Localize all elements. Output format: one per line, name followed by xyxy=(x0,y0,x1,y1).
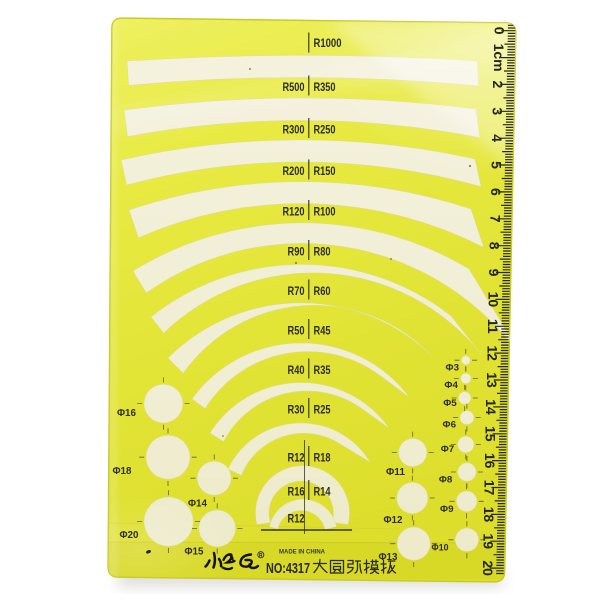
svg-text:17: 17 xyxy=(482,480,498,496)
svg-text:18: 18 xyxy=(481,507,497,523)
svg-text:R100: R100 xyxy=(314,204,336,218)
svg-text:Φ12: Φ12 xyxy=(384,514,403,526)
svg-text:R1000: R1000 xyxy=(314,36,342,50)
svg-text:R18: R18 xyxy=(314,450,331,464)
svg-text:13: 13 xyxy=(484,372,500,388)
svg-text:Φ11: Φ11 xyxy=(386,466,405,478)
svg-text:MADE IN CHINA: MADE IN CHINA xyxy=(279,549,325,556)
svg-text:Φ20: Φ20 xyxy=(120,529,139,541)
svg-text:R40: R40 xyxy=(288,363,305,377)
svg-text:R250: R250 xyxy=(314,122,336,136)
svg-text:Φ8: Φ8 xyxy=(439,475,453,485)
svg-text:Φ4: Φ4 xyxy=(444,380,458,390)
svg-text:R50: R50 xyxy=(288,323,305,337)
svg-text:1cm: 1cm xyxy=(491,44,507,72)
svg-text:R35: R35 xyxy=(314,363,331,377)
svg-text:Φ7: Φ7 xyxy=(441,444,455,454)
svg-text:0: 0 xyxy=(491,27,507,35)
svg-text:R80: R80 xyxy=(314,244,331,258)
svg-text:R500: R500 xyxy=(283,80,305,94)
svg-text:12: 12 xyxy=(484,345,500,361)
svg-text:9: 9 xyxy=(486,269,502,277)
svg-text:10: 10 xyxy=(486,292,502,308)
svg-text:NO:4317: NO:4317 xyxy=(266,561,310,577)
svg-text:R14: R14 xyxy=(314,484,331,498)
svg-text:R: R xyxy=(259,553,263,559)
svg-text:Φ16: Φ16 xyxy=(117,407,136,419)
svg-text:R60: R60 xyxy=(314,284,331,298)
svg-text:Φ6: Φ6 xyxy=(443,420,457,430)
svg-text:R120: R120 xyxy=(283,204,305,218)
svg-text:Φ5: Φ5 xyxy=(443,398,457,408)
svg-text:15: 15 xyxy=(483,426,499,442)
svg-text:11: 11 xyxy=(485,319,501,334)
svg-text:R30: R30 xyxy=(288,402,305,416)
svg-text:8: 8 xyxy=(487,242,503,250)
svg-text:Φ14: Φ14 xyxy=(188,497,207,509)
svg-text:6: 6 xyxy=(488,188,504,196)
svg-text:R300: R300 xyxy=(283,122,305,136)
svg-text:R12: R12 xyxy=(288,511,305,525)
svg-text:R12: R12 xyxy=(288,450,305,464)
svg-text:R90: R90 xyxy=(288,244,305,258)
svg-text:19: 19 xyxy=(480,533,496,549)
svg-text:5: 5 xyxy=(488,161,504,169)
svg-text:7: 7 xyxy=(487,215,503,223)
svg-text:16: 16 xyxy=(482,453,498,469)
svg-text:R350: R350 xyxy=(314,80,336,94)
svg-text:Φ9: Φ9 xyxy=(440,504,454,514)
svg-text:20: 20 xyxy=(480,560,496,576)
svg-text:R25: R25 xyxy=(314,402,331,416)
svg-text:R70: R70 xyxy=(288,284,305,298)
svg-text:R150: R150 xyxy=(314,164,336,178)
svg-text:2: 2 xyxy=(490,81,506,89)
svg-text:Φ15: Φ15 xyxy=(185,545,204,557)
svg-text:14: 14 xyxy=(483,399,499,415)
svg-text:Φ3: Φ3 xyxy=(446,362,460,372)
svg-text:R16: R16 xyxy=(288,484,305,498)
svg-text:3: 3 xyxy=(490,107,506,115)
svg-text:R45: R45 xyxy=(314,323,331,337)
svg-text:4: 4 xyxy=(489,134,505,142)
svg-text:Φ18: Φ18 xyxy=(113,465,132,477)
svg-text:R200: R200 xyxy=(283,164,305,178)
